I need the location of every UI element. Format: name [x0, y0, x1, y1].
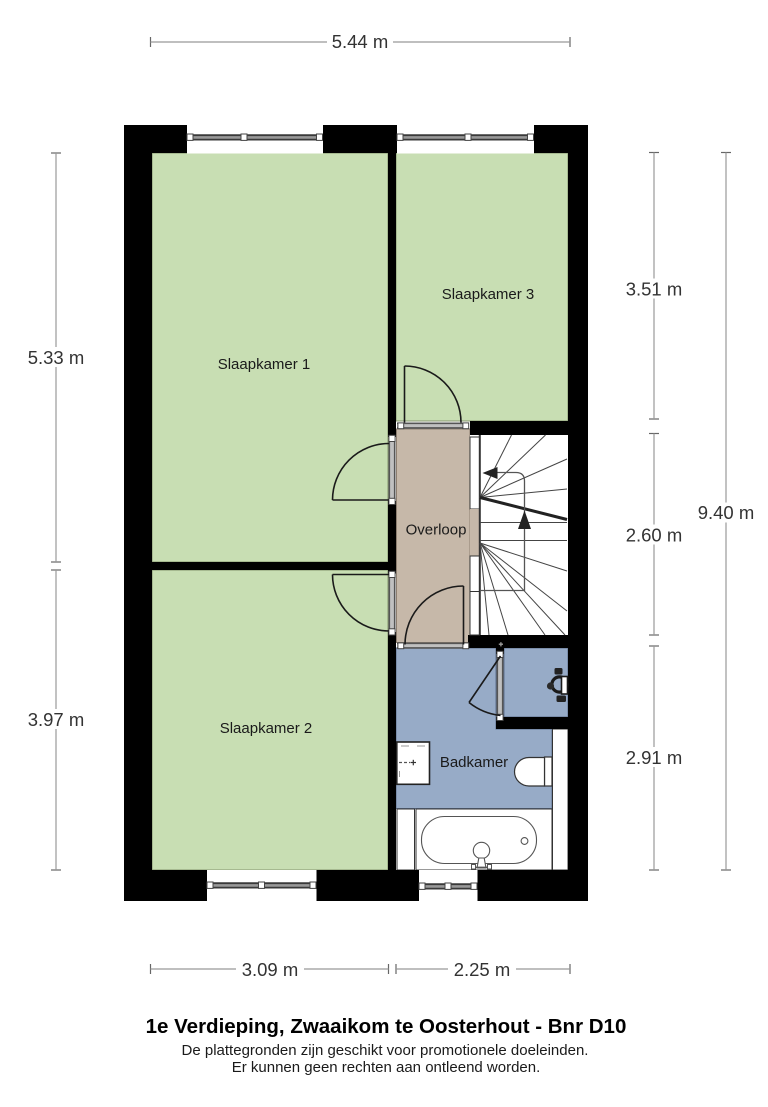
svg-text:Slaapkamer 2: Slaapkamer 2: [220, 720, 313, 737]
svg-text:De plattegronden zijn geschikt: De plattegronden zijn geschikt voor prom…: [182, 1042, 589, 1059]
svg-text:Overloop: Overloop: [406, 522, 467, 539]
svg-text:Badkamer: Badkamer: [440, 754, 508, 771]
svg-text:Er kunnen geen rechten aan ont: Er kunnen geen rechten aan ontleend word…: [232, 1059, 541, 1076]
svg-text:3.97 m: 3.97 m: [28, 709, 85, 730]
svg-text:1e Verdieping, Zwaaikom te Oos: 1e Verdieping, Zwaaikom te Oosterhout - …: [146, 1015, 627, 1038]
svg-text:9.40 m: 9.40 m: [698, 502, 755, 523]
svg-text:2.25 m: 2.25 m: [454, 959, 511, 980]
svg-text:3.51 m: 3.51 m: [626, 279, 683, 300]
svg-text:3.09 m: 3.09 m: [242, 959, 299, 980]
svg-text:5.44 m: 5.44 m: [332, 31, 389, 52]
svg-text:2.91 m: 2.91 m: [626, 747, 683, 768]
svg-text:Slaapkamer 1: Slaapkamer 1: [218, 356, 311, 373]
svg-text:Slaapkamer 3: Slaapkamer 3: [442, 286, 535, 303]
svg-text:5.33 m: 5.33 m: [28, 347, 85, 368]
svg-text:2.60 m: 2.60 m: [626, 525, 683, 546]
